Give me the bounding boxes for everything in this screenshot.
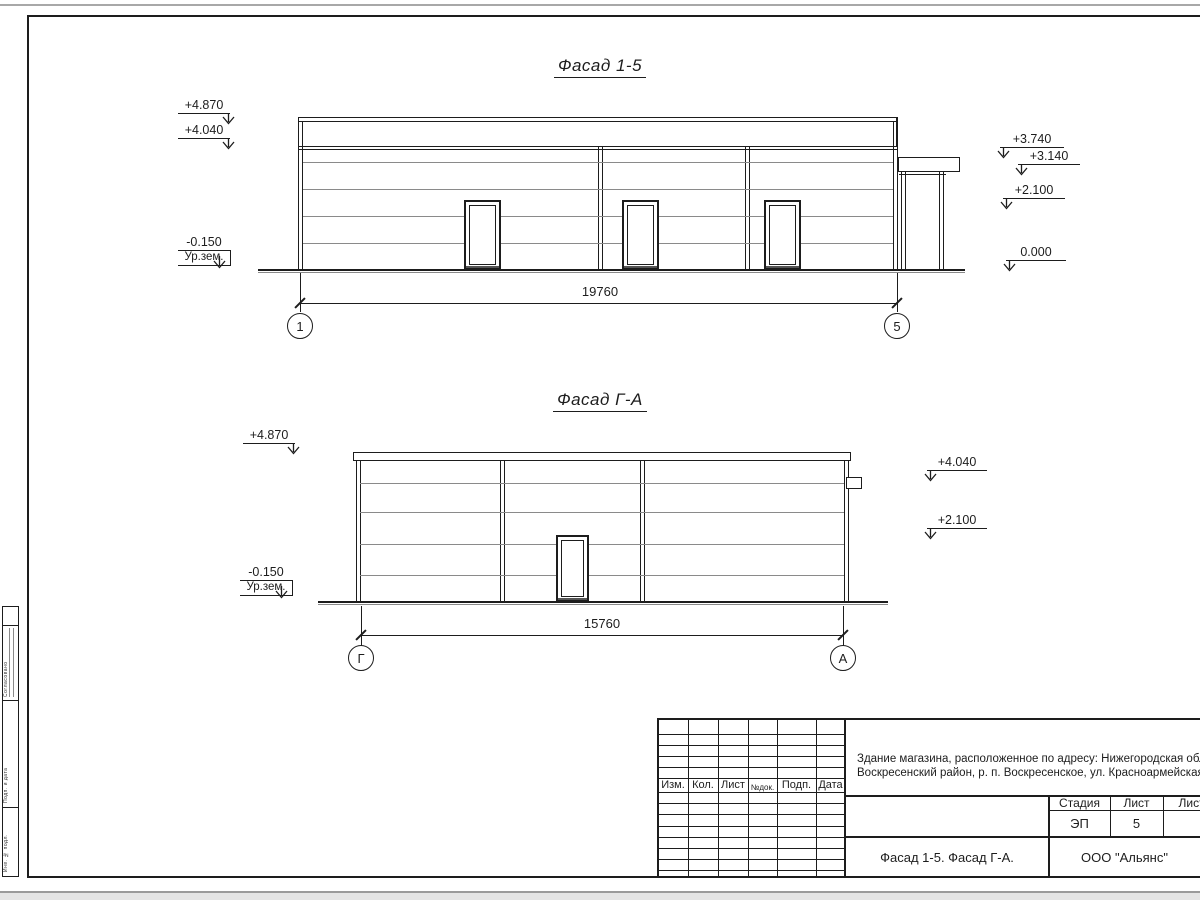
elevation-mark: +2.100 <box>1003 183 1065 199</box>
drawing-box <box>898 157 960 172</box>
elevation-mark: +3.740 <box>1000 132 1064 148</box>
drawing-line <box>504 460 505 601</box>
drawing-line <box>300 273 301 312</box>
side-stamp-label: Подп. и дата <box>3 703 9 803</box>
rev-col-ndok: №док. <box>748 781 777 794</box>
drawing-line <box>845 836 1200 838</box>
drawing-line <box>318 604 888 605</box>
elevation-arrow-icon <box>275 586 288 600</box>
drawing-line <box>598 147 599 271</box>
drawing-line <box>361 635 843 636</box>
drawing-line <box>939 172 940 271</box>
drawing-line <box>640 460 641 601</box>
elevation-arrow-icon <box>213 256 226 270</box>
rev-col-kol: Кол. <box>688 779 718 792</box>
elevation-mark: +3.140 <box>1018 149 1080 165</box>
drawing-line <box>657 718 659 878</box>
axis-bubble-5: 5 <box>884 313 910 339</box>
drawing-line <box>644 460 645 601</box>
elevation-value: -0.150 <box>248 565 283 579</box>
door-leaf <box>469 205 496 265</box>
drawing-line <box>360 575 844 576</box>
elevation-value: 0.000 <box>1020 245 1051 259</box>
drawing-line <box>258 272 965 273</box>
drawing-box <box>846 477 862 489</box>
drawing-line <box>0 893 1200 900</box>
drawing-line <box>657 718 1200 720</box>
dimension-text: 15760 <box>542 616 662 631</box>
drawing-line <box>658 848 845 849</box>
drawing-line <box>360 460 361 601</box>
side-stamp-label: Инв. № подл. <box>3 810 9 872</box>
elevation-value: +3.740 <box>1013 132 1052 146</box>
drawing-line <box>360 483 844 484</box>
drawing-line <box>2 807 19 808</box>
elevation-value: +4.870 <box>185 98 224 112</box>
elevation-mark: -0.150 <box>178 235 230 251</box>
drawing-line <box>748 718 749 878</box>
drawing-line <box>500 460 501 601</box>
elevation-arrow-icon <box>1000 198 1013 211</box>
drawing-line <box>303 162 893 163</box>
stage-value: ЭП <box>1049 816 1110 831</box>
door-sill <box>766 266 799 268</box>
elevation-mark: +4.040 <box>927 455 987 471</box>
drawing-line <box>658 814 845 815</box>
drawing-line <box>18 606 19 877</box>
drawing-box <box>353 452 851 461</box>
sheets-total-label: Листов <box>1160 797 1200 810</box>
drawing-line <box>658 859 845 860</box>
drawing-line <box>749 147 750 271</box>
rev-col-data: Дата <box>816 779 845 792</box>
sheet-value: 5 <box>1110 816 1163 831</box>
drawing-line <box>303 243 893 244</box>
drawing-line <box>658 870 845 871</box>
drawing-line <box>658 756 845 757</box>
drawing-sheet: Фасад 1-5 +4.870 +4.040 -0.150 Ур.зем. +… <box>0 0 1200 900</box>
elevation-mark: +4.040 <box>178 123 230 139</box>
organization-name: ООО "Альянс" <box>1049 850 1200 865</box>
drawing-line <box>658 745 845 746</box>
door-leaf <box>561 540 584 597</box>
drawing-line <box>360 512 844 513</box>
elevation-arrow-icon <box>222 138 235 151</box>
axis-bubble-g: Г <box>348 645 374 671</box>
rev-col-list: Лист <box>718 779 748 792</box>
drawing-line <box>356 460 357 601</box>
elevation-value: +4.040 <box>938 455 977 469</box>
drawing-line <box>300 303 897 304</box>
drawing-line <box>27 15 1200 17</box>
drawing-line <box>897 273 898 312</box>
drawing-line <box>658 837 845 838</box>
elevation-value: +3.140 <box>1030 149 1069 163</box>
drawing-line <box>816 718 817 878</box>
facade-1-5-title-text: Фасад 1-5 <box>554 56 646 78</box>
drawing-line <box>13 628 14 697</box>
drawing-name: Фасад 1-5. Фасад Г-А. <box>845 850 1049 865</box>
drawing-line <box>360 544 844 545</box>
facade-g-a-title-text: Фасад Г-А <box>553 390 647 412</box>
side-stamp-label: Согласовано <box>3 628 9 697</box>
drawing-line <box>361 606 362 646</box>
elevation-value: -0.150 <box>186 235 221 249</box>
dimension-text: 19760 <box>540 284 660 299</box>
facade-g-a-title: Фасад Г-А <box>480 390 720 410</box>
door-leaf <box>769 205 796 265</box>
elevation-mark: -0.150 <box>240 565 292 581</box>
drawing-line <box>658 803 845 804</box>
project-description-line1: Здание магазина, расположенное по адресу… <box>857 752 1200 766</box>
drawing-line <box>2 625 19 626</box>
door-leaf <box>627 205 654 265</box>
door-sill <box>466 266 499 268</box>
drawing-line <box>658 826 845 827</box>
drawing-line <box>658 734 845 735</box>
elevation-mark: +4.870 <box>178 98 230 114</box>
elevation-arrow-icon <box>287 443 300 456</box>
drawing-line <box>843 606 844 646</box>
drawing-line <box>688 718 689 878</box>
door <box>464 200 501 270</box>
drawing-line <box>1049 810 1200 811</box>
door-sill <box>558 598 587 600</box>
drawing-line <box>893 121 894 271</box>
project-description-line2: Воскресенский район, р. п. Воскресенское… <box>857 766 1200 780</box>
drawing-line <box>745 147 746 271</box>
drawing-line <box>318 601 888 603</box>
axis-bubble-a: А <box>830 645 856 671</box>
drawing-line <box>897 117 898 271</box>
door <box>622 200 659 270</box>
rev-col-izm: Изм. <box>658 779 688 792</box>
door-sill <box>624 266 657 268</box>
elevation-value: +2.100 <box>1015 183 1054 197</box>
elevation-arrow-icon <box>1003 260 1016 273</box>
elevation-arrow-icon <box>924 470 937 483</box>
drawing-line <box>905 172 906 271</box>
drawing-line <box>901 172 902 271</box>
stage-label: Стадия <box>1049 797 1110 810</box>
elevation-value: +4.870 <box>250 428 289 442</box>
drawing-line <box>602 147 603 271</box>
rev-col-podp: Подп. <box>777 779 816 792</box>
door <box>764 200 801 270</box>
drawing-line <box>303 216 893 217</box>
elevation-mark: +2.100 <box>927 513 987 529</box>
elevation-arrow-icon <box>1015 164 1028 177</box>
drawing-line <box>844 460 845 601</box>
elevation-value: +2.100 <box>938 513 977 527</box>
elevation-arrow-icon <box>924 528 937 541</box>
elevation-mark: 0.000 <box>1006 245 1066 261</box>
drawing-line <box>303 189 893 190</box>
drawing-line <box>298 117 299 271</box>
drawing-line <box>9 628 10 697</box>
drawing-line <box>2 876 19 877</box>
drawing-line <box>718 718 719 878</box>
drawing-line <box>0 4 1200 6</box>
drawing-line <box>302 121 303 271</box>
drawing-line <box>27 876 1200 878</box>
elevation-arrow-icon <box>997 147 1010 160</box>
drawing-line <box>27 15 29 878</box>
drawing-line <box>258 269 965 271</box>
drawing-line <box>299 121 896 122</box>
drawing-line <box>2 606 19 607</box>
axis-bubble-1: 1 <box>287 313 313 339</box>
elevation-mark: +4.870 <box>243 428 295 444</box>
elevation-value: +4.040 <box>185 123 224 137</box>
facade-1-5-title: Фасад 1-5 <box>480 56 720 76</box>
drawing-line <box>777 718 778 878</box>
drawing-line <box>2 700 19 701</box>
sheet-label: Лист <box>1110 797 1163 810</box>
door <box>556 535 589 602</box>
drawing-line <box>943 172 944 271</box>
drawing-line <box>658 767 845 768</box>
